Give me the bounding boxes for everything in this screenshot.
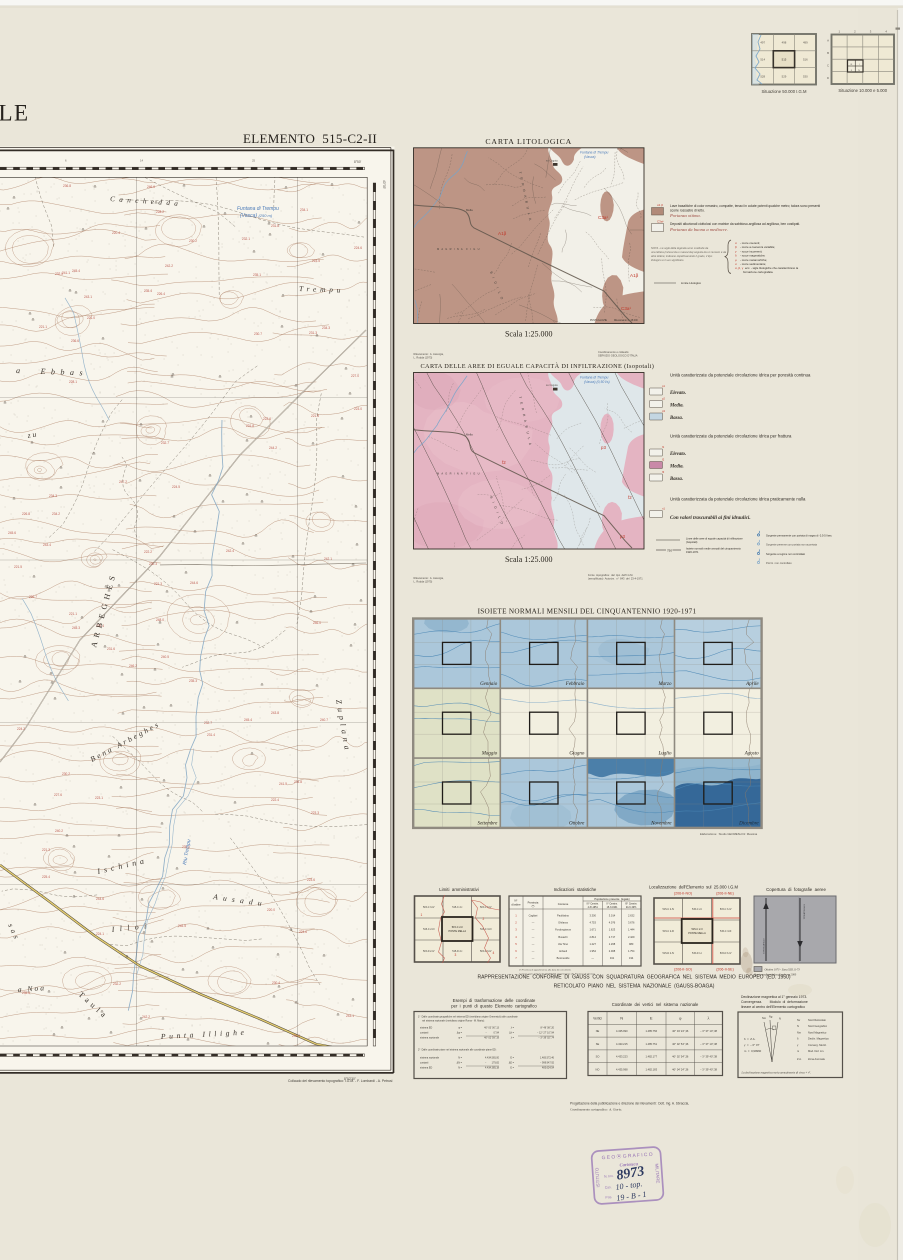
svg-text:244.6: 244.6: [96, 897, 104, 901]
svg-text:243.1: 243.1: [84, 295, 92, 299]
svg-text:1.754: 1.754: [628, 949, 635, 953]
svg-text:M A G R I N A F I G U: M A G R I N A F I G U: [437, 472, 480, 476]
svg-text:4.434.385,18: 4.434.385,18: [485, 1067, 500, 1070]
svg-text:Boroneddu: Boroneddu: [557, 956, 570, 960]
svg-text:Elaborazione: Studio GEOMESH: Elaborazione: Studio GEOMESH Dr. Messina: [700, 832, 758, 836]
svg-text:Agosto: Agosto: [744, 752, 759, 757]
svg-text:Situazione 50.000 I.G.M: Situazione 50.000 I.G.M: [762, 89, 807, 94]
svg-text:Indicazioni statistiche: Indicazioni statistiche: [554, 887, 597, 892]
svg-text:sistema ED: sistema ED: [420, 1067, 432, 1070]
svg-text:1.444: 1.444: [628, 928, 635, 932]
svg-text:m = 0,99960: m = 0,99960: [744, 1049, 762, 1053]
svg-text:C3a¹: C3a¹: [598, 215, 608, 220]
svg-text:Esempi di trasformazione de: Esempi di trasformazione delle coordinat…: [453, 998, 536, 1003]
svg-text:Rilevamento 1 : 25.000: Rilevamento 1 : 25.000: [614, 319, 638, 322]
svg-text:223.5: 223.5: [312, 259, 320, 263]
svg-text:515-D 2-IV: 515-D 2-IV: [423, 950, 435, 953]
svg-text:40° 04' 24",36: 40° 04' 24",36: [672, 1029, 689, 1033]
svg-text:Settembre: Settembre: [477, 821, 498, 826]
svg-text:Provincia: Provincia: [528, 901, 539, 905]
svg-text:515-C 2-II: 515-C 2-II: [691, 928, 702, 931]
svg-text:Portanza ottima.: Portanza ottima.: [669, 213, 701, 218]
svg-text:lineare al centro dell'Element: lineare al centro dell'Elemento cartogra…: [741, 1005, 805, 1009]
svg-text:Limite Litologico: Limite Litologico: [681, 281, 701, 285]
svg-text:Nm: Nm: [797, 1030, 801, 1034]
svg-text:nel sistema nazionale (meridia: nel sistema nazionale (meridiano origine…: [422, 1020, 485, 1023]
svg-text:245.4: 245.4: [244, 718, 252, 722]
svg-text:(*) Provincia di appartenenza: (*) Provincia di appartenenza alla data …: [519, 969, 572, 972]
svg-text:XI° Censim.: XI° Censim.: [625, 904, 638, 906]
svg-text:8°50': 8°50': [354, 160, 362, 164]
svg-text:4.435.998: 4.435.998: [616, 1068, 628, 1072]
svg-text:246.6: 246.6: [147, 185, 155, 189]
svg-text:Nord Geografico: Nord Geografico: [808, 1024, 828, 1028]
svg-text:515-C 2-I: 515-C 2-I: [452, 906, 462, 909]
svg-text:515-C 2-IV: 515-C 2-IV: [663, 908, 675, 911]
svg-text:1.483.572,46: 1.483.572,46: [540, 1057, 555, 1060]
svg-text:228.2: 228.2: [156, 210, 164, 214]
svg-text:224.5: 224.5: [172, 485, 180, 489]
svg-text:234.3: 234.3: [49, 494, 57, 498]
svg-text:226.7: 226.7: [29, 595, 37, 599]
svg-text:4.434.565,00: 4.434.565,00: [485, 1057, 500, 1060]
svg-text:sistema nazionale: sistema nazionale: [420, 1057, 440, 1060]
svg-text:8° 48' 08",20: 8° 48' 08",20: [540, 1027, 554, 1030]
svg-text:Funtana di Trempu: Funtana di Trempu: [580, 376, 609, 380]
svg-text:p3: p3: [620, 534, 625, 539]
svg-text:− 3° 37' 10",38: − 3° 37' 10",38: [700, 1029, 718, 1033]
svg-text:Limiti amministrativi: Limiti amministrativi: [439, 887, 479, 892]
svg-text:N =: N =: [458, 1057, 462, 1060]
svg-text:A: A: [827, 39, 829, 43]
svg-text:NOTA - Le sigle della legenda: NOTA - Le sigle della legenda sono costi…: [651, 246, 709, 250]
svg-text:244.6: 244.6: [190, 581, 198, 585]
svg-text:litologico e il suo significat: litologico e il suo significato.: [651, 258, 684, 262]
svg-text:Fonte topografica: dal tipo: Fonte topografica: dal tipo dell'I.G.M.: [588, 573, 633, 577]
svg-text:(Vasca): (Vasca): [584, 155, 596, 159]
svg-text:15-X-1961: 15-X-1961: [607, 907, 618, 909]
svg-text:− 3° 37' 10",38: − 3° 37' 10",38: [700, 1042, 718, 1046]
svg-text:ΔN =: ΔN =: [457, 1062, 463, 1065]
svg-text:SE: SE: [596, 1042, 600, 1046]
svg-text:40° 03' 00",13: 40° 03' 00",13: [484, 1027, 500, 1030]
svg-text:4: 4: [493, 951, 495, 955]
svg-text:483.624,54: 483.624,54: [542, 1067, 555, 1070]
svg-text:(206-II-NE): (206-II-NE): [716, 892, 734, 896]
svg-text:ELEMENTO 515-C2-II: ELEMENTO 515-C2-II: [243, 131, 377, 146]
svg-text:223.1: 223.1: [95, 796, 103, 800]
svg-text:240.5: 240.5: [161, 655, 169, 659]
svg-text:230.2: 230.2: [62, 772, 70, 776]
svg-text:(*): (*): [532, 904, 535, 908]
svg-text:—: —: [532, 922, 535, 925]
svg-text:4-XI-1951: 4-XI-1951: [588, 907, 599, 909]
svg-text:f2: f2: [502, 460, 506, 465]
svg-text:Luglio: Luglio: [657, 752, 672, 757]
svg-text:A1β: A1β: [498, 231, 507, 236]
svg-text:Ottobre 1973 - Zona XIII 11-73: Ottobre 1973 - Zona XIII 11-73: [765, 969, 801, 972]
svg-text:4.433.223: 4.433.223: [616, 1055, 628, 1059]
svg-text:α1 β: α1 β: [657, 203, 663, 207]
svg-text:λ: λ: [708, 1016, 710, 1021]
svg-text:Rilevamento: A. Assorgia,: Rilevamento: A. Assorgia,: [414, 576, 445, 580]
svg-text:− 3° 39' 40",38: − 3° 39' 40",38: [700, 1055, 718, 1059]
svg-text:243.4: 243.4: [43, 543, 51, 547]
svg-text:Aprile: Aprile: [745, 682, 759, 687]
svg-text:E: E: [650, 1016, 653, 1021]
svg-text:2.008: 2.008: [609, 949, 616, 953]
svg-text:2: 2: [483, 917, 485, 921]
svg-text:PONTE MELLA: PONTE MELLA: [688, 932, 706, 935]
svg-text:Z.A.: Z.A.: [797, 1057, 802, 1061]
svg-text:D: D: [827, 76, 829, 80]
svg-text:222.6: 222.6: [263, 417, 271, 421]
svg-text:Ula Tirso: Ula Tirso: [558, 942, 569, 946]
svg-text:Nord Magnetico: Nord Magnetico: [808, 1030, 827, 1034]
svg-text:243.1: 243.1: [346, 1014, 354, 1018]
svg-text:Media.: Media.: [669, 404, 684, 409]
svg-text:Isoiete normali medie annuali: Isoiete normali medie annuali del cinqua…: [686, 547, 741, 551]
svg-text:f2: f2: [628, 495, 632, 500]
svg-text:220.4: 220.4: [112, 231, 120, 235]
svg-text:CARTA LITOLOGICA: CARTA LITOLOGICA: [485, 137, 572, 146]
svg-text:25: 25: [252, 159, 256, 163]
svg-text:Situazione 10.000 e 5.000: Situazione 10.000 e 5.000: [838, 88, 887, 93]
svg-text:RETICOLATO PIANO NEL SISTEM: RETICOLATO PIANO NEL SISTEMA NAZIONALE (…: [554, 984, 715, 990]
svg-text:246.2: 246.2: [129, 664, 137, 668]
svg-text:—: —: [532, 950, 535, 953]
svg-text:Progettazione della pubblicazi: Progettazione della pubblicazione e dire…: [570, 1102, 689, 1106]
svg-text:SERVIZIO GEOLOGICO D'ITALIA: SERVIZIO GEOLOGICO D'ITALIA: [598, 354, 638, 358]
svg-text:223.6: 223.6: [307, 878, 315, 882]
svg-text:248.0: 248.0: [156, 618, 164, 622]
svg-text:A1β: A1β: [630, 273, 639, 278]
svg-text:40° 04' 24",36: 40° 04' 24",36: [672, 1068, 689, 1072]
svg-text:3.300: 3.300: [589, 914, 596, 918]
svg-text:(206-II-SE): (206-II-SE): [716, 968, 734, 972]
svg-text:N. Inv.: N. Inv.: [604, 1174, 614, 1179]
svg-text:γ = − 0° 07': γ = − 0° 07': [744, 1043, 760, 1047]
svg-text:L. Rudda (1973): L. Rudda (1973): [414, 356, 433, 360]
svg-text:PUNTA ILLIGHE: PUNTA ILLIGHE: [590, 319, 607, 322]
svg-text:per i punti di questo Ele: per i punti di questo Elemento cartograf…: [451, 1004, 537, 1009]
svg-text:2.717: 2.717: [609, 935, 616, 939]
svg-text:235.3: 235.3: [189, 679, 197, 683]
svg-text:(206-II-SO): (206-II-SO): [674, 968, 692, 972]
svg-text:Marzo: Marzo: [657, 682, 672, 687]
svg-text:Coordinamento e collaudo:: Coordinamento e collaudo:: [598, 350, 629, 354]
svg-text:530: 530: [803, 74, 808, 78]
svg-text:Giugno: Giugno: [569, 752, 585, 757]
svg-text:3: 3: [455, 953, 457, 957]
svg-text:Rilevamento: A. Assorgia,: Rilevamento: A. Assorgia,: [414, 352, 445, 356]
svg-text:− 999.947,92: − 999.947,92: [540, 1062, 555, 1065]
svg-text:una lettera (minuscola o maius: una lettera (minuscola o maiuscola) segu…: [651, 250, 727, 254]
svg-text:515-C 3-III: 515-C 3-III: [480, 928, 492, 931]
svg-text:Scala 1:25.000: Scala 1:25.000: [505, 555, 553, 564]
svg-text:Media.: Media.: [669, 465, 684, 470]
svg-text:515-C 3-IV: 515-C 3-IV: [423, 906, 435, 909]
svg-text:2° Dalle coordinate piane nel: 2° Dalle coordinate piane nel sistema na…: [418, 1049, 497, 1052]
svg-text:1.954: 1.954: [589, 949, 596, 953]
svg-text:222.4: 222.4: [271, 798, 279, 802]
svg-text:231.8: 231.8: [271, 224, 279, 228]
svg-text:515-D 1-I: 515-D 1-I: [692, 952, 702, 955]
svg-text:1.485.751: 1.485.751: [645, 1042, 657, 1046]
svg-text:230.3: 230.3: [149, 562, 157, 566]
svg-text:750: 750: [667, 548, 672, 552]
svg-text:Ardauli: Ardauli: [559, 949, 567, 953]
svg-text:N: N: [797, 1024, 799, 1028]
svg-text:formazione cartografata.: formazione cartografata.: [743, 270, 774, 274]
svg-text:Convergenza. Modulo di: Convergenza. Modulo di deformazione: [741, 1000, 808, 1004]
svg-text:Copertura di fotografie aer: Copertura di fotografie aeree: [766, 887, 826, 892]
svg-text:Mella: Mella: [466, 433, 473, 437]
svg-text:40°05': 40°05': [382, 180, 386, 189]
svg-text:su Cugutu: su Cugutu: [546, 383, 558, 387]
svg-text:40° 02' 54",36: 40° 02' 54",36: [672, 1055, 689, 1059]
svg-text:341: 341: [610, 956, 615, 960]
svg-text:IX° Censim.: IX° Censim.: [587, 904, 600, 906]
svg-text:− 3° 39' 40",38: − 3° 39' 40",38: [700, 1068, 718, 1072]
svg-text:234.2: 234.2: [52, 512, 60, 516]
svg-text:Pozzo non controllato: Pozzo non controllato: [766, 561, 792, 565]
svg-text:Con valori trascurabili ai fin: Con valori trascurabili ai fini idraulic…: [670, 516, 751, 521]
svg-text:4.076: 4.076: [609, 921, 616, 925]
svg-text:Unità caratterizzate da potenz: Unità caratterizzate da potenziale circo…: [670, 373, 811, 378]
svg-text:Cagliari: Cagliari: [529, 914, 538, 918]
svg-text:Vertici: Vertici: [593, 1017, 602, 1021]
svg-text:232.7: 232.7: [204, 721, 212, 725]
svg-text:L. Rudda (1975): L. Rudda (1975): [414, 580, 433, 584]
svg-text:Busachi: Busachi: [558, 935, 568, 939]
svg-text:243.8: 243.8: [271, 711, 279, 715]
svg-text:515-C 2-II: 515-C 2-II: [452, 926, 463, 929]
svg-text:245.3: 245.3: [72, 626, 80, 630]
svg-text:Elevato.: Elevato.: [669, 452, 686, 457]
svg-text:247.2: 247.2: [119, 480, 127, 484]
svg-text:240.7: 240.7: [320, 718, 328, 722]
svg-text:Comune: Comune: [558, 902, 569, 906]
svg-text:1.485.756: 1.485.756: [645, 1029, 657, 1033]
svg-text:231.3: 231.3: [309, 331, 317, 335]
svg-text:costanti: costanti: [420, 1032, 429, 1035]
svg-text:φ =: φ =: [458, 1037, 462, 1040]
svg-text:225.4: 225.4: [42, 875, 50, 879]
svg-text:Nm: Nm: [762, 1016, 766, 1020]
svg-text:4.433.215: 4.433.215: [616, 1042, 628, 1046]
svg-text:Bassa.: Bassa.: [669, 477, 683, 482]
svg-text:Ghilarza: Ghilarza: [558, 921, 568, 925]
svg-text:40° 02' 59",19: 40° 02' 59",19: [484, 1037, 500, 1040]
svg-text:CARTA DELLE AREE DI EGUALE CAP: CARTA DELLE AREE DI EGUALE CAPACITÀ DI I…: [421, 362, 655, 370]
svg-text:d'ordine: d'ordine: [511, 903, 521, 907]
svg-text:221.1: 221.1: [69, 612, 77, 616]
svg-text:1.482.177: 1.482.177: [645, 1055, 657, 1059]
svg-text:N: N: [779, 1017, 781, 1021]
svg-text:scorie rossastre di letto.: scorie rossastre di letto.: [670, 209, 705, 213]
svg-text:Sorgente a regime non controll: Sorgente a regime non controllato: [766, 552, 806, 556]
svg-text:su Cugutu: su Cugutu: [546, 159, 558, 163]
svg-text:—: —: [532, 957, 535, 960]
svg-text:241.5: 241.5: [279, 782, 287, 786]
svg-text:C: C: [827, 63, 829, 67]
svg-text:Gennaio: Gennaio: [480, 682, 498, 687]
svg-text:Maggio: Maggio: [481, 752, 498, 757]
svg-text:Pos.: Pos.: [605, 1195, 612, 1199]
svg-text:221.5: 221.5: [14, 565, 22, 569]
svg-text:(semplificato) Autorizz. n°: (semplificato) Autorizz. n° 843 del 23-4…: [588, 577, 643, 581]
svg-text:499: 499: [803, 41, 808, 45]
svg-text:costanti: costanti: [420, 1062, 429, 1065]
svg-text:Cas.: Cas.: [605, 1185, 612, 1189]
svg-text:SO: SO: [596, 1055, 600, 1059]
svg-text:529: 529: [782, 74, 787, 78]
svg-text:230.2: 230.2: [189, 239, 197, 243]
svg-text:245.5: 245.5: [178, 924, 186, 928]
svg-text:Dicembre: Dicembre: [738, 821, 759, 826]
svg-text:NE: NE: [596, 1029, 600, 1033]
svg-text:234.8: 234.8: [294, 780, 302, 784]
svg-text:1.671: 1.671: [589, 928, 596, 932]
svg-text:ISOIETE NORMALI MENSILI DEL CI: ISOIETE NORMALI MENSILI DEL CINQUANTENNI…: [478, 608, 697, 616]
svg-text:226.8: 226.8: [22, 512, 30, 516]
svg-text:515-D 3-IV: 515-D 3-IV: [720, 952, 732, 955]
svg-text:Bassa.: Bassa.: [669, 416, 683, 421]
svg-text:514: 514: [760, 57, 765, 61]
svg-text:X° Censim.: X° Censim.: [606, 904, 618, 906]
svg-text:Elevato.: Elevato.: [669, 391, 686, 396]
svg-text:231.6: 231.6: [107, 647, 115, 651]
svg-text:Ng: Ng: [769, 1015, 773, 1019]
svg-text:228.1: 228.1: [69, 380, 77, 384]
svg-text:—: —: [591, 957, 594, 960]
svg-text:δ = Z.A.: δ = Z.A.: [744, 1037, 756, 1041]
svg-text:Δφ =: Δφ =: [457, 1032, 463, 1035]
svg-text:980: 980: [629, 942, 634, 946]
svg-text:1.623: 1.623: [609, 928, 616, 932]
svg-text:242.2: 242.2: [165, 264, 173, 268]
svg-text:14: 14: [140, 159, 144, 163]
svg-text:N: N: [620, 1016, 623, 1021]
svg-text:227.6: 227.6: [54, 793, 62, 797]
svg-text:236.8: 236.8: [63, 184, 71, 188]
svg-text:p3: p3: [601, 445, 606, 450]
svg-text:516: 516: [803, 57, 808, 61]
svg-text:223.3: 223.3: [311, 811, 319, 815]
svg-text:Nord Reticolato: Nord Reticolato: [808, 1018, 826, 1022]
svg-text:1.268: 1.268: [609, 942, 616, 946]
svg-text:(Isopotali): (Isopotali): [686, 540, 698, 544]
svg-text:PONTE MELLA: PONTE MELLA: [448, 930, 466, 933]
svg-text:Δλ =: Δλ =: [509, 1032, 514, 1035]
svg-text:528: 528: [760, 74, 765, 78]
svg-text:Sorgente perenne con portata n: Sorgente perenne con portata non accerta…: [766, 543, 817, 547]
svg-text:La declinazione magnetica vari: La declinazione magnetica varia annualme…: [741, 1071, 812, 1075]
svg-text:E =: E =: [510, 1067, 514, 1070]
svg-text:—: —: [532, 943, 535, 946]
svg-text:1: 1: [421, 913, 423, 917]
svg-text:245.4: 245.4: [72, 269, 80, 273]
svg-text:515-C 2-I: 515-C 2-I: [692, 908, 702, 911]
svg-text:515-C 3-III: 515-C 3-III: [720, 930, 732, 933]
svg-text:221.0: 221.0: [87, 316, 95, 320]
svg-text:STRISCIATA 10: STRISCIATA 10: [763, 938, 766, 954]
svg-text:altre lettere; indicano rispet: altre lettere; indicano rispettivamente …: [651, 254, 713, 258]
svg-text:4.753: 4.753: [589, 921, 596, 925]
svg-text:226.4: 226.4: [157, 292, 165, 296]
svg-text:4.435.990: 4.435.990: [616, 1029, 628, 1033]
svg-text:Novembre: Novembre: [650, 821, 672, 826]
svg-text:515: 515: [782, 57, 787, 61]
svg-text:235.4: 235.4: [144, 289, 152, 293]
svg-text:246.0: 246.0: [313, 621, 321, 625]
svg-text:M A G R I N A F I G U: M A G R I N A F I G U: [437, 247, 480, 251]
svg-text:C3a¹: C3a¹: [657, 220, 664, 224]
svg-text:1.482.183: 1.482.183: [645, 1068, 657, 1072]
svg-text:24-X-1971: 24-X-1971: [626, 907, 637, 909]
svg-text:221.8: 221.8: [311, 414, 319, 418]
svg-text:Converg. Merid.: Converg. Merid.: [808, 1043, 827, 1047]
svg-text:Collaudo del rilevamento topog: Collaudo del rilevamento topografico: I.…: [288, 1079, 393, 1083]
svg-text:231.4: 231.4: [207, 733, 215, 737]
svg-text:227.0: 227.0: [351, 374, 359, 378]
svg-text:222.2: 222.2: [144, 550, 152, 554]
svg-text:NO: NO: [596, 1068, 600, 1072]
svg-text:221.3: 221.3: [154, 582, 162, 586]
svg-text:Declin. Magnetica: Declin. Magnetica: [808, 1037, 829, 1041]
svg-text:497: 497: [760, 41, 765, 45]
svg-text:Coordinate dei vertici nel: Coordinate dei vertici nel sistema nazio…: [612, 1002, 699, 1007]
svg-text:− 12° 27' 10",94: − 12° 27' 10",94: [537, 1032, 555, 1035]
svg-text:230.4: 230.4: [272, 981, 280, 985]
svg-text:224.6: 224.6: [354, 246, 362, 250]
svg-text:1° Dalle coordinate geografic: 1° Dalle coordinate geografiche nel sist…: [418, 1016, 518, 1019]
svg-text:Sorgente permanente con portat: Sorgente permanente con portata di magra…: [766, 534, 832, 538]
svg-text:Trempu: Trempu: [299, 284, 344, 295]
svg-text:234.3: 234.3: [322, 326, 330, 330]
svg-text:Unità caratterizzate da potenz: Unità caratterizzate da potenziale circo…: [670, 434, 792, 439]
svg-text:236.6: 236.6: [71, 339, 79, 343]
svg-text:Febbraio: Febbraio: [565, 682, 585, 687]
svg-text:2.429: 2.429: [628, 935, 635, 939]
svg-text:φ =: φ =: [458, 1027, 462, 1030]
svg-text:Popolazione presente (legale): Popolazione presente (legale): [594, 897, 629, 901]
svg-text:3.676: 3.676: [628, 921, 635, 925]
svg-text:515-C 2-III: 515-C 2-III: [423, 928, 435, 931]
svg-text:232.7: 232.7: [161, 441, 169, 445]
svg-text:Funtana di Trempu: Funtana di Trempu: [237, 206, 279, 212]
svg-text:242.2: 242.2: [142, 1015, 150, 1019]
svg-text:515-C 3-IV: 515-C 3-IV: [720, 908, 732, 911]
svg-text:Lave basaltiche di color neras: Lave basaltiche di color nerastro, compa…: [670, 204, 820, 208]
svg-text:Mella: Mella: [466, 208, 473, 212]
svg-text:m: m: [797, 1050, 799, 1053]
svg-text:—: —: [532, 929, 535, 932]
svg-text:244.2: 244.2: [269, 446, 277, 450]
svg-text:231.8: 231.8: [246, 424, 254, 428]
svg-text:241.1: 241.1: [62, 271, 70, 275]
svg-text:245.6: 245.6: [8, 531, 16, 535]
svg-text:224.2: 224.2: [17, 727, 25, 731]
svg-text:Paulilatino: Paulilatino: [557, 914, 570, 918]
svg-text:233.6: 233.6: [292, 1034, 300, 1038]
svg-text:Portanza da buona a mediocre.: Portanza da buona a mediocre.: [669, 227, 728, 232]
svg-text:1920-1971: 1920-1971: [686, 550, 699, 554]
svg-text:RAPPRESENTAZIONE CONFORME DI: RAPPRESENTAZIONE CONFORME DI GAUSS CON S…: [477, 975, 790, 981]
svg-text:232.1: 232.1: [242, 237, 250, 241]
svg-text:ΔE =: ΔE =: [509, 1062, 515, 1065]
